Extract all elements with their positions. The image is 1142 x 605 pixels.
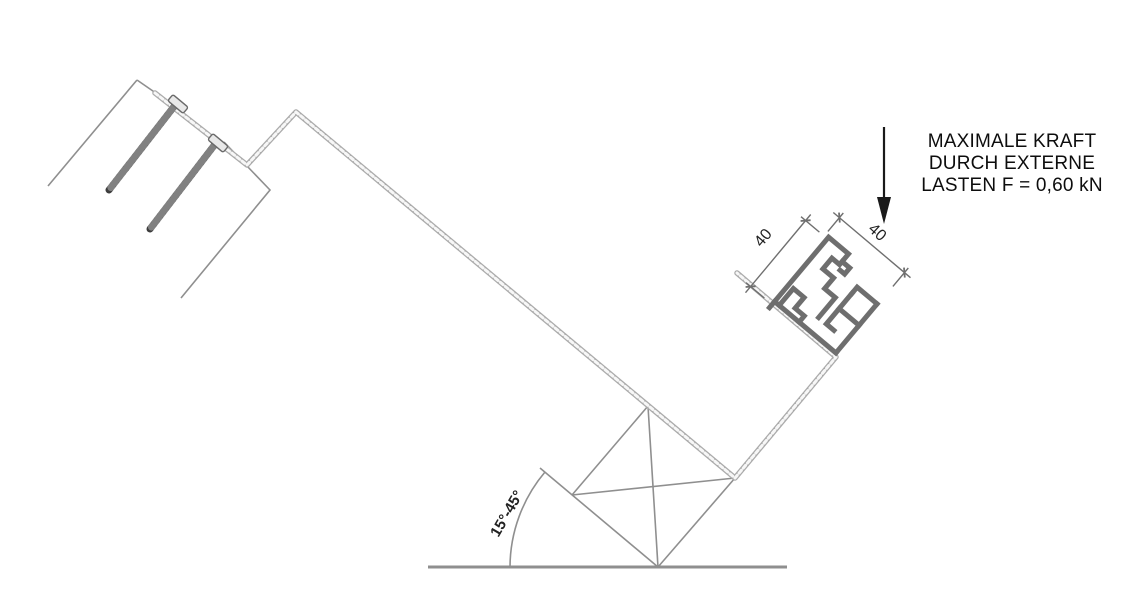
extension-line <box>828 213 843 231</box>
profile-left-jaw <box>769 237 862 336</box>
dimension-tick <box>746 286 756 287</box>
extension-line <box>893 268 908 286</box>
roof-pitch-line <box>540 468 658 567</box>
support-truss <box>540 406 735 567</box>
force-annotation-line1: MAXIMALE KRAFT <box>896 131 1128 153</box>
force-annotation-line3: LASTEN F = 0,60 kN <box>896 175 1128 197</box>
truss-edge-bottom-right <box>658 478 735 567</box>
technical-drawing-canvas: 15°-45° <box>0 0 1142 605</box>
pitch-angle-arc <box>510 472 545 567</box>
fastening-screw-2 <box>150 134 228 229</box>
force-annotation-line2: DURCH EXTERNE <box>896 153 1128 175</box>
dimension-left-label: 40 <box>751 226 776 251</box>
panel-edge <box>181 142 270 298</box>
fastening-screw-1 <box>109 95 188 190</box>
extension-line <box>801 217 819 232</box>
roof-sheet <box>155 93 836 478</box>
arrow-down-icon <box>877 127 891 224</box>
dimension-tick <box>904 268 905 278</box>
fastening-screws <box>109 95 228 229</box>
rail-profile-cross-section <box>769 237 889 359</box>
substructure-edges <box>48 80 270 298</box>
force-arrow-head <box>877 197 891 224</box>
dimension-line <box>746 215 811 293</box>
screw-thread-texture <box>150 143 216 229</box>
force-annotation: MAXIMALE KRAFT DURCH EXTERNE LASTEN F = … <box>896 131 1128 197</box>
truss-edge-top-left <box>572 406 648 495</box>
pitch-angle-label: 15°-45° <box>487 488 527 540</box>
profile-crossbar <box>839 309 859 326</box>
roof-sheet-path <box>155 93 836 478</box>
dimension-left <box>746 215 820 299</box>
dimension-tick <box>839 213 840 223</box>
dimension-tick <box>801 220 811 221</box>
dimension-line <box>833 213 910 278</box>
seam-clamp-detail-drawing: 15°-45° <box>0 0 1142 605</box>
screw-thread-texture <box>109 104 176 190</box>
